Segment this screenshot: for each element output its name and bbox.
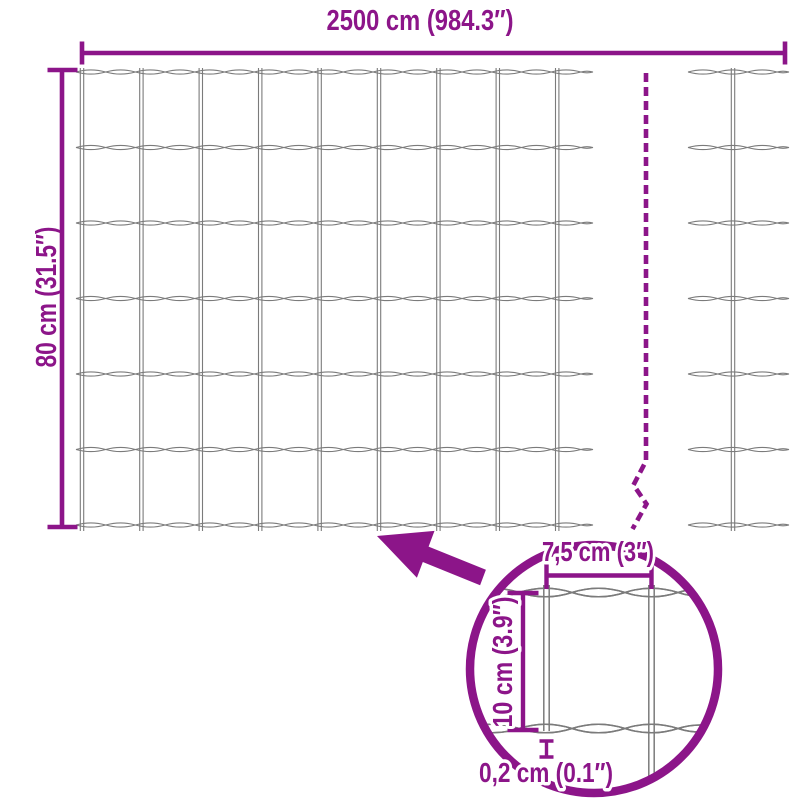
wire-mesh-main-panel (76, 68, 593, 531)
width-dimension: 2500 cm (984.3″) (82, 5, 785, 65)
mesh-opening-height-label: 10 cm (3.9″) (487, 597, 518, 728)
wire-thickness-label: 0,2 cm (0.1″) (479, 757, 613, 788)
zoom-pointer-arrow-icon (377, 531, 486, 585)
vertical-wire (731, 68, 734, 531)
diagram-canvas: 2500 cm (984.3″) 80 cm (31.5″) 7,5 cm (3… (0, 0, 800, 800)
break-line-dashed (633, 73, 647, 529)
height-dimension-label: 80 cm (31.5″) (31, 227, 63, 368)
fence-dimension-diagram: 2500 cm (984.3″) 80 cm (31.5″) 7,5 cm (3… (0, 0, 800, 800)
width-dimension-label: 2500 cm (984.3″) (327, 5, 514, 37)
wire-mesh-continuation-panel (688, 68, 789, 531)
height-dimension: 80 cm (31.5″) (31, 70, 78, 527)
mesh-opening-width-label: 7,5 cm (3″) (542, 536, 654, 567)
width-dimension-line (82, 42, 785, 65)
